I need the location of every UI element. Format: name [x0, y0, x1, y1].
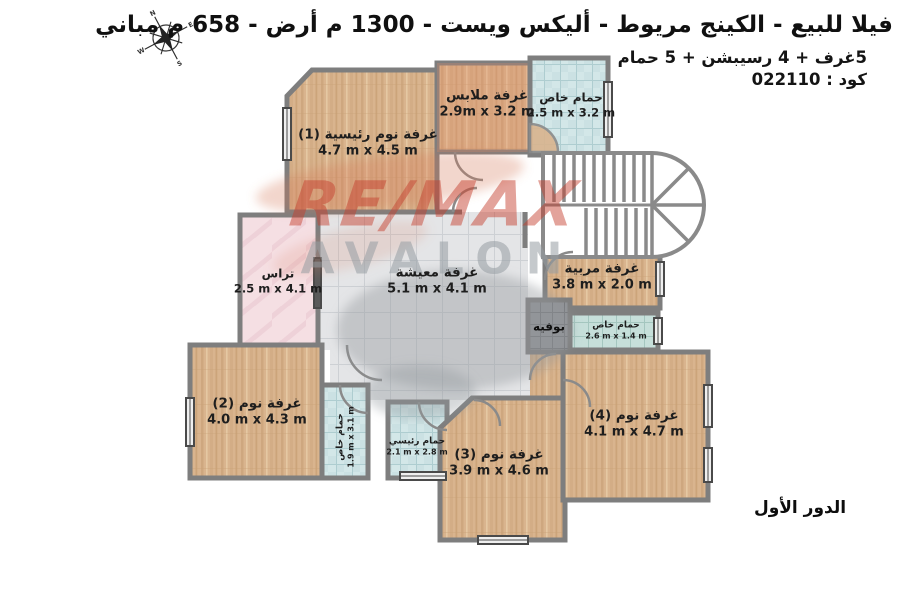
- room-dims: 5.1 m x 4.1 m: [387, 281, 487, 297]
- label-nanny: غرفة مربية 3.8 m x 2.0 m: [552, 260, 652, 293]
- room-name: بوفيه: [533, 320, 565, 335]
- floorplan-page: N E S W RE/MAX AVALON فيلا للبيع - الكين…: [0, 0, 900, 599]
- room-name: غرفة ملابس: [439, 87, 534, 104]
- label-buffet: بوفيه: [533, 320, 565, 335]
- label-master-bedroom: غرفة نوم رئيسية (1) 4.7 m x 4.5 m: [298, 126, 438, 159]
- room-name: حمام خاص: [585, 320, 646, 331]
- room-name: غرفة مربية: [552, 260, 652, 277]
- room-dims: 2.1 m x 2.8 m: [386, 448, 447, 458]
- room-dims: 4.7 m x 4.5 m: [298, 143, 438, 159]
- floor-name-label: الدور الأول: [754, 498, 846, 518]
- room-dims: 3.9 m x 4.6 m: [449, 463, 549, 479]
- label-bedroom2: غرفة نوم (2) 4.0 m x 4.3 m: [207, 395, 307, 428]
- compass-s: S: [176, 59, 184, 68]
- room-dims: 4.1 m x 4.7 m: [584, 424, 684, 440]
- room-name: غرفة نوم (3): [449, 446, 549, 463]
- room-name: حمام خاص: [335, 406, 346, 467]
- room-name: حمام رئيسي: [386, 436, 447, 447]
- room-dims: 2.6 m x 1.4 m: [585, 332, 646, 342]
- label-bedroom2-bath: حمام خاص 1.9 m x 3.1 m: [335, 406, 356, 467]
- room-dims: 4.0 m x 4.3 m: [207, 412, 307, 428]
- compass-w: W: [136, 46, 146, 56]
- room-dims: 2.5 m x 3.2 m: [527, 105, 615, 119]
- room-dims: 3.8 m x 2.0 m: [552, 277, 652, 293]
- label-suite-bath: حمام خاص 2.5 m x 3.2 m: [527, 90, 615, 119]
- room-name: غرفة نوم رئيسية (1): [298, 126, 438, 143]
- label-dressing: غرفة ملابس 2.9m x 3.2 m: [439, 87, 534, 120]
- label-bedroom4: غرفة نوم (4) 4.1 m x 4.7 m: [584, 407, 684, 440]
- label-service-bath: حمام خاص 2.6 m x 1.4 m: [585, 320, 646, 341]
- label-living: غرفة معيشة 5.1 m x 4.1 m: [387, 264, 487, 297]
- staircase: [543, 153, 704, 257]
- page-title: فيلا للبيع - الكينج مريوط - أليكس ويست -…: [95, 12, 893, 38]
- room-dims: 1.9 m x 3.1 m: [347, 406, 357, 467]
- room-name: غرفة معيشة: [387, 264, 487, 281]
- room-name: تراس: [234, 266, 322, 281]
- label-terrace: تراس 2.5 m x 4.1 m: [234, 266, 322, 295]
- listing-summary: 5غرف + 4 رسيبشن + 5 حمام: [618, 48, 867, 67]
- room-name: غرفة نوم (2): [207, 395, 307, 412]
- room-dims: 2.5 m x 4.1 m: [234, 281, 322, 295]
- label-master-bath: حمام رئيسي 2.1 m x 2.8 m: [386, 436, 447, 457]
- label-bedroom3: غرفة نوم (3) 3.9 m x 4.6 m: [449, 446, 549, 479]
- room-name: حمام خاص: [527, 90, 615, 105]
- room-name: غرفة نوم (4): [584, 407, 684, 424]
- room-dims: 2.9m x 3.2 m: [439, 104, 534, 120]
- listing-code: كود : 022110: [752, 70, 867, 89]
